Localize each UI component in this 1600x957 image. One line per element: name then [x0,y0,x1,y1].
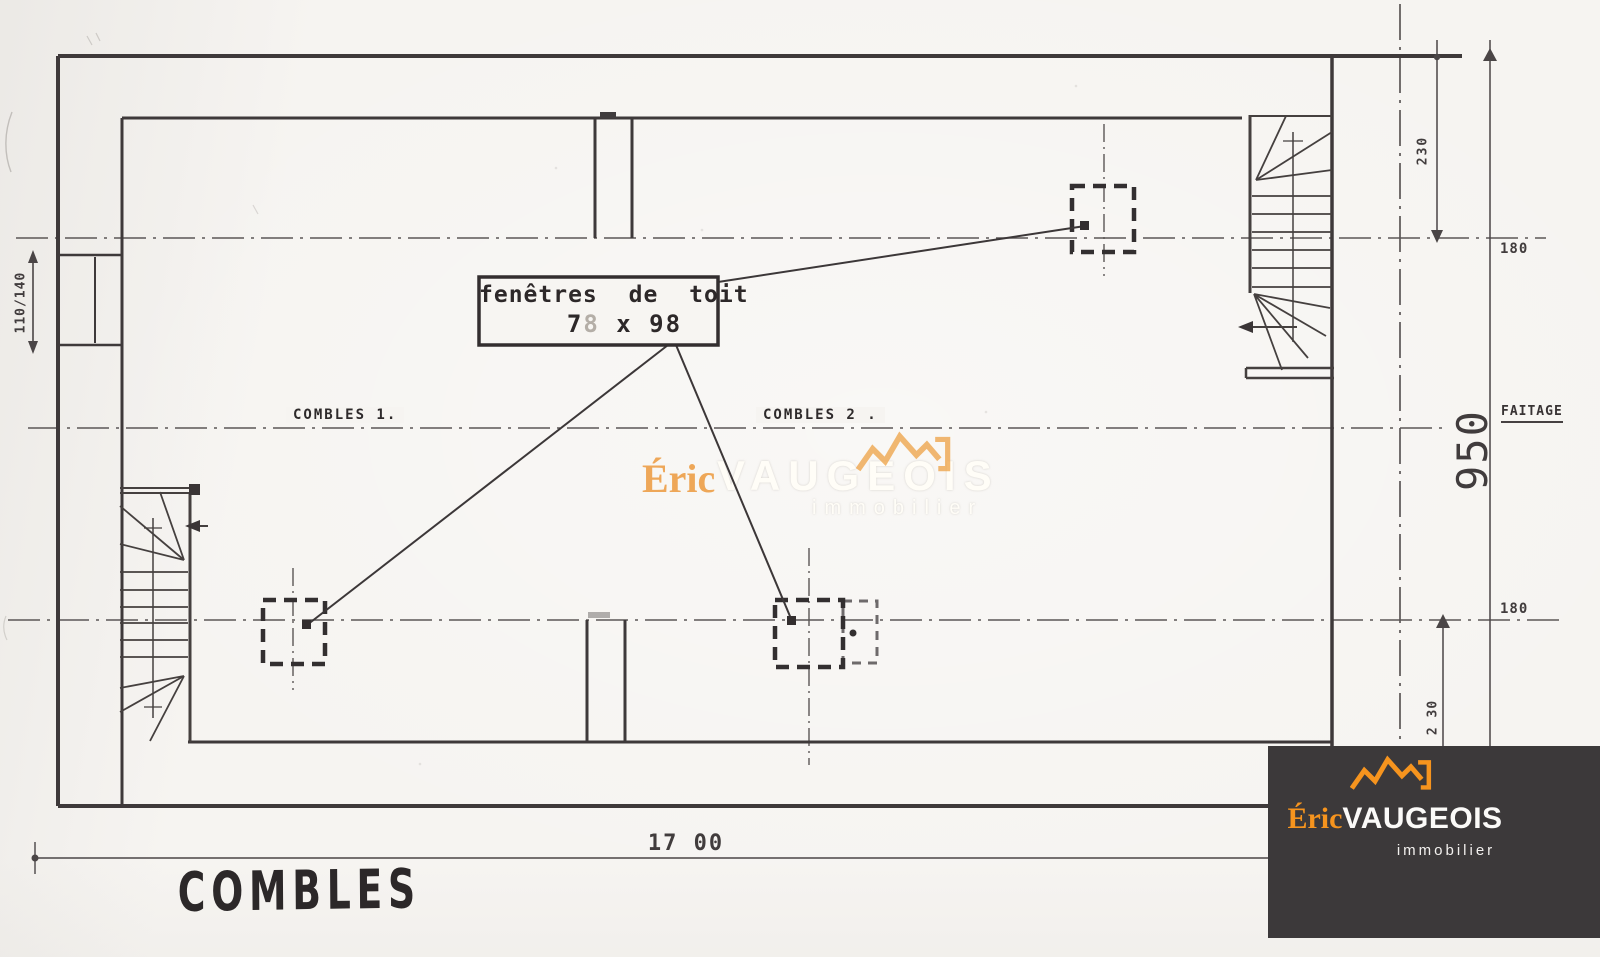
landing-edge [1246,368,1334,378]
staircase-right [1238,115,1334,378]
dim-180-top-label: 180 [1500,241,1528,257]
note-size-7: 7 [567,310,583,338]
lower-winders [120,676,184,741]
roof-windows [263,186,1134,667]
dim-230-top-label: 230 [1416,121,1431,181]
lower-winders [1254,294,1330,370]
agency-logo-box: ÉricVAUGEOIS immobilier [1268,746,1600,938]
upper-winders [120,492,184,560]
floor-plan-scan: Éric VAUGEOIS immobilier [0,0,1600,957]
dim-width-label: 17 00 [646,831,726,856]
note-size: 78 x 98 [505,310,744,338]
dim-left-window-label: 110/140 [14,274,29,334]
ridge-label: FAITAGE [1501,404,1563,423]
page-title: COMBLES [178,857,422,924]
upper-winders [1256,116,1332,180]
agency-name-eric: Éric [1287,802,1342,835]
stair-treads [120,572,188,657]
stair-direction-arrow [1238,321,1253,333]
note-text: fenêtres de toit [479,282,718,308]
agency-name-vaugeois: VAUGEOIS [1342,802,1502,835]
dim-950-label: 950 [1448,390,1492,510]
leader-dot [787,616,796,625]
roof-window-top-right [1072,186,1134,252]
room-label-combles2: COMBLES 2 . [756,407,885,423]
staircase-left [120,484,208,742]
top-wall-stub [595,118,632,238]
note-size-8: 8 [583,310,599,338]
stair-direction-arrow [185,520,200,532]
dim-230-bottom-label: 2 30 [1426,688,1441,748]
left-window-opening [58,255,122,345]
newel-post [189,484,200,495]
roof-window-ghost-outline [843,601,877,663]
bottom-wall-stub [587,620,625,742]
stair-treads [1252,196,1332,287]
agency-roof-icon [1350,752,1436,800]
roof-window-bottom-left [263,600,325,664]
leader-dot [1080,221,1089,230]
leader-dot [302,620,311,629]
note-size-rest: x 98 [600,310,682,338]
scan-artifacts [4,33,1078,765]
agency-name: ÉricVAUGEOIS [1280,802,1510,836]
agency-tagline: immobilier [1386,842,1506,859]
room-label-combles1: COMBLES 1. [286,407,404,423]
dim-180-bottom-label: 180 [1500,601,1528,617]
